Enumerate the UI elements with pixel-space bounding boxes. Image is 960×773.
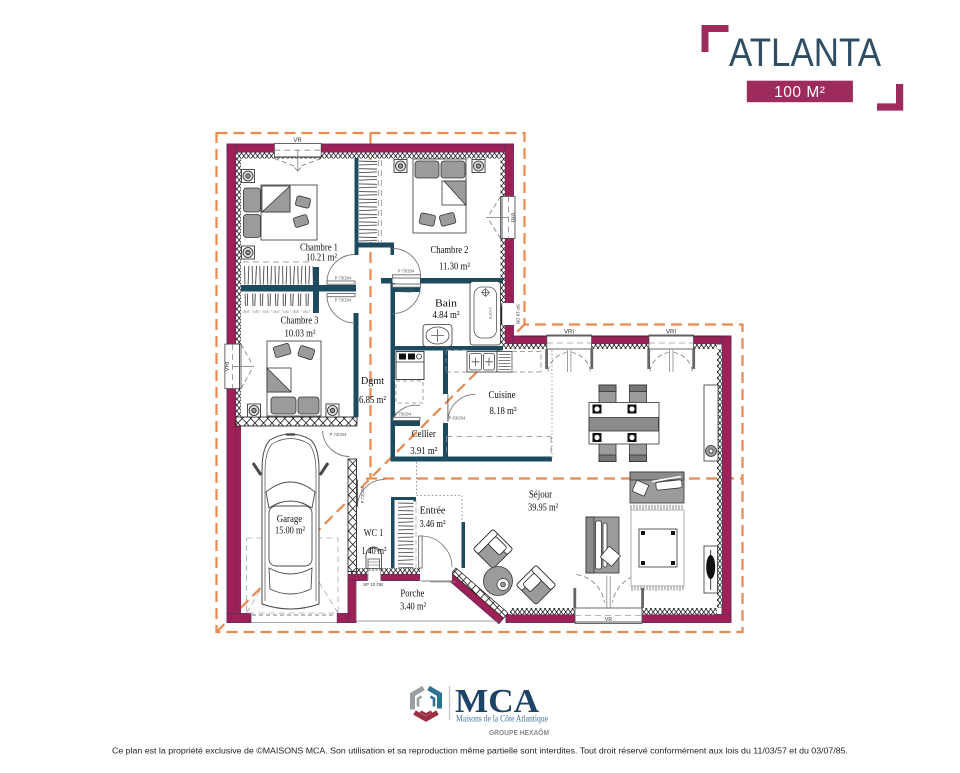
svg-text:Entrée: Entrée — [420, 505, 446, 517]
svg-text:P 63/204: P 63/204 — [449, 416, 466, 421]
svg-text:11.30 m²: 11.30 m² — [439, 261, 470, 273]
svg-text:P 73/204: P 73/204 — [360, 486, 365, 503]
svg-text:WC 1: WC 1 — [364, 527, 384, 539]
svg-text:Dgmt: Dgmt — [361, 375, 384, 387]
svg-text:Cellier: Cellier — [412, 428, 436, 440]
svg-text:15.00 m²: 15.00 m² — [275, 524, 305, 536]
svg-text:Cuisine: Cuisine — [489, 389, 516, 401]
svg-text:VRI: VRI — [509, 212, 515, 222]
svg-text:Garage: Garage — [277, 513, 303, 525]
svg-text:P 73/204: P 73/204 — [398, 269, 415, 274]
svg-text:ATLANTA: ATLANTA — [729, 31, 881, 75]
svg-text:Bain: Bain — [435, 297, 458, 309]
svg-text:39.95 m²: 39.95 m² — [528, 502, 558, 514]
svg-text:Chambre 2: Chambre 2 — [431, 244, 469, 256]
svg-text:Ce plan est la propriété exclu: Ce plan est la propriété exclusive de ©M… — [112, 747, 848, 756]
svg-text:P 73/204: P 73/204 — [330, 432, 347, 437]
svg-text:6.85 m²: 6.85 m² — [359, 394, 386, 406]
svg-text:Séjour: Séjour — [529, 489, 553, 501]
svg-text:P 73/204: P 73/204 — [335, 298, 352, 303]
svg-text:Maisons de la Côte Atlantique: Maisons de la Côte Atlantique — [456, 714, 548, 724]
svg-text:VR: VR — [605, 617, 612, 623]
svg-text:VRI: VRI — [666, 330, 676, 336]
svg-text:P 73/204: P 73/204 — [395, 412, 412, 417]
svg-text:SP 10 OB: SP 10 OB — [363, 582, 383, 587]
svg-text:3.40 m²: 3.40 m² — [400, 601, 426, 613]
svg-text:VRI: VRI — [225, 361, 231, 371]
svg-text:Chambre 3: Chambre 3 — [281, 315, 319, 327]
svg-text:P 73/204: P 73/204 — [398, 289, 415, 294]
svg-text:8.18 m²: 8.18 m² — [490, 405, 517, 417]
svg-text:VRI: VRI — [564, 330, 574, 336]
svg-text:P 73/204: P 73/204 — [335, 276, 352, 281]
svg-text:SP 10 OB: SP 10 OB — [516, 304, 521, 324]
svg-text:3.46 m²: 3.46 m² — [420, 518, 446, 530]
svg-text:Porche: Porche — [400, 587, 424, 599]
svg-text:10.21 m²: 10.21 m² — [306, 252, 337, 264]
svg-text:4.84 m²: 4.84 m² — [433, 309, 460, 321]
svg-text:VR: VR — [293, 138, 302, 144]
svg-text:1.40 m²: 1.40 m² — [362, 545, 387, 557]
svg-text:100 M²: 100 M² — [774, 84, 825, 101]
svg-text:GROUPE HEXAÔM: GROUPE HEXAÔM — [489, 728, 549, 737]
svg-text:10.03 m²: 10.03 m² — [285, 328, 316, 340]
svg-text:170/75: 170/75 — [488, 307, 493, 320]
svg-text:3.91 m²: 3.91 m² — [410, 445, 437, 457]
